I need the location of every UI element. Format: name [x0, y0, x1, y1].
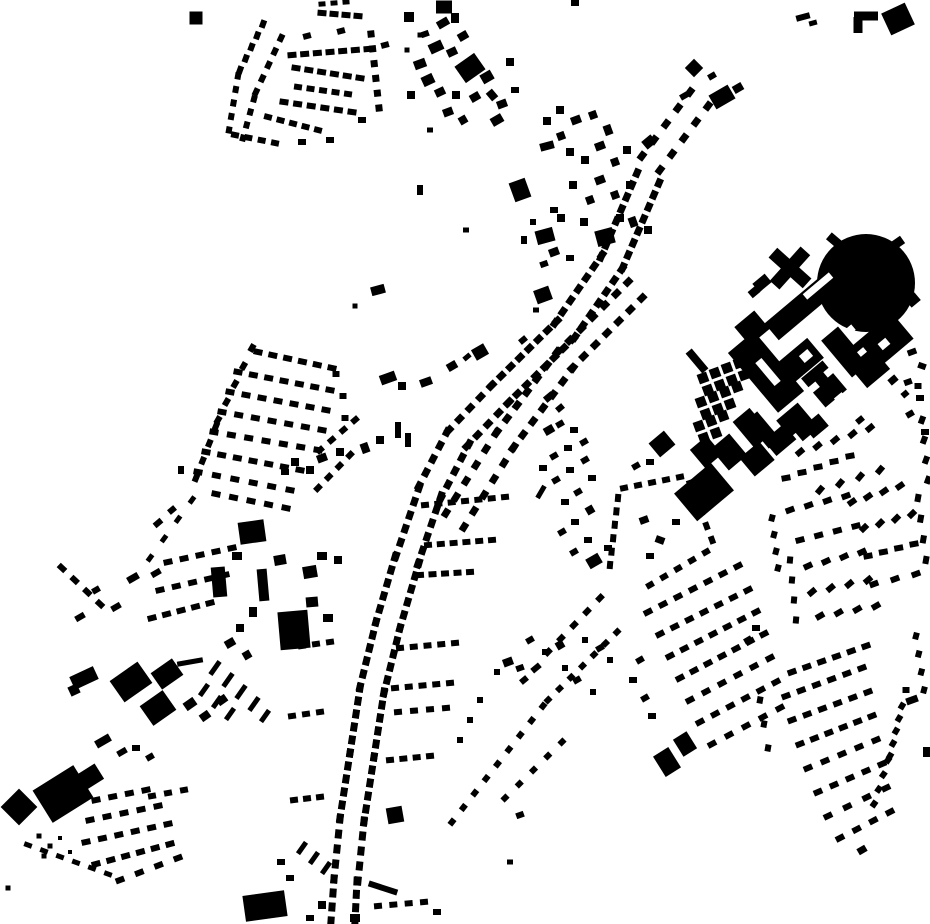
building	[813, 787, 824, 796]
building	[871, 601, 882, 611]
building	[823, 811, 834, 820]
building	[155, 586, 165, 594]
building	[459, 803, 468, 812]
building	[370, 752, 378, 762]
building	[499, 457, 510, 468]
building	[580, 218, 588, 226]
building	[334, 556, 342, 564]
building	[622, 276, 633, 287]
building	[380, 687, 388, 697]
building	[506, 58, 514, 66]
building	[558, 376, 569, 387]
building	[418, 682, 427, 689]
building	[639, 515, 650, 525]
building	[264, 60, 273, 70]
building	[914, 494, 921, 503]
building	[288, 712, 297, 719]
building	[228, 113, 235, 121]
figure-ground-map	[0, 0, 930, 924]
building	[356, 861, 364, 871]
building	[392, 636, 401, 646]
building	[578, 351, 589, 362]
building	[247, 108, 255, 116]
building	[454, 413, 465, 424]
building	[802, 710, 813, 719]
building	[613, 507, 620, 515]
building	[493, 759, 502, 768]
building	[471, 343, 489, 360]
building	[326, 137, 334, 143]
building	[855, 415, 865, 425]
building	[97, 835, 107, 843]
building	[108, 793, 118, 801]
building	[261, 437, 271, 444]
building	[325, 386, 335, 394]
building	[273, 554, 287, 566]
building	[341, 12, 350, 19]
building	[653, 747, 681, 777]
building	[752, 625, 760, 631]
building	[795, 12, 810, 21]
building	[368, 630, 377, 640]
building	[685, 695, 696, 704]
building	[756, 696, 763, 704]
building	[816, 657, 826, 666]
building	[874, 785, 883, 794]
building	[518, 429, 529, 440]
building	[603, 124, 614, 136]
building	[446, 360, 459, 372]
building	[820, 757, 831, 766]
building	[725, 701, 736, 711]
building	[246, 497, 256, 505]
building	[6, 886, 11, 891]
building	[442, 705, 450, 712]
building	[434, 500, 443, 507]
building	[187, 579, 197, 587]
building	[708, 535, 716, 545]
building	[287, 52, 296, 59]
building	[709, 367, 722, 380]
building	[126, 572, 140, 584]
building	[324, 472, 334, 482]
building	[153, 861, 164, 870]
building	[466, 569, 474, 575]
building	[368, 765, 376, 775]
building	[103, 870, 112, 877]
building	[284, 420, 294, 427]
building	[895, 481, 906, 491]
building	[551, 475, 561, 484]
building	[689, 666, 700, 675]
building	[308, 851, 320, 865]
building	[496, 99, 508, 110]
building	[365, 643, 374, 653]
building	[451, 13, 459, 23]
building	[338, 425, 348, 435]
building	[423, 642, 432, 649]
building	[771, 677, 782, 687]
building	[454, 53, 485, 83]
building	[242, 890, 287, 922]
building	[740, 693, 751, 703]
building	[631, 461, 641, 470]
building	[655, 535, 666, 545]
building	[313, 126, 322, 134]
building	[289, 400, 299, 408]
building	[917, 362, 927, 370]
building	[610, 534, 617, 542]
building	[452, 91, 460, 99]
building	[589, 261, 600, 272]
building	[329, 888, 337, 897]
building	[522, 386, 533, 397]
building	[673, 592, 684, 601]
building	[386, 757, 395, 764]
building	[228, 494, 238, 502]
building	[831, 652, 841, 661]
building	[768, 514, 776, 522]
building	[669, 622, 680, 631]
building	[360, 442, 371, 454]
building	[302, 32, 311, 40]
building	[469, 91, 482, 103]
building	[441, 507, 452, 518]
building	[395, 422, 401, 438]
building	[327, 435, 337, 445]
building	[515, 779, 524, 788]
building	[688, 584, 699, 593]
building	[529, 765, 538, 774]
building	[449, 540, 457, 547]
building	[347, 108, 357, 115]
building	[691, 116, 702, 127]
building	[557, 737, 566, 746]
building	[673, 102, 684, 113]
building	[673, 564, 683, 573]
building	[374, 89, 382, 97]
building	[647, 479, 656, 486]
building	[428, 571, 436, 577]
building	[403, 597, 412, 608]
building	[329, 11, 338, 18]
building	[774, 564, 782, 572]
building	[543, 424, 556, 436]
building	[475, 391, 486, 402]
building	[846, 647, 856, 656]
building	[482, 774, 491, 783]
building	[865, 423, 876, 433]
building	[291, 64, 301, 71]
building	[607, 657, 613, 663]
building	[399, 610, 408, 621]
building	[150, 568, 162, 578]
building	[920, 435, 928, 445]
building	[238, 519, 267, 544]
building	[294, 380, 304, 388]
building	[890, 575, 901, 584]
building	[404, 900, 412, 907]
building	[310, 383, 320, 391]
building	[257, 394, 267, 402]
building	[470, 788, 479, 797]
building	[623, 146, 631, 154]
building	[854, 743, 865, 752]
building	[879, 486, 890, 496]
building	[259, 19, 267, 29]
building	[396, 623, 405, 633]
building	[244, 434, 254, 441]
building	[298, 642, 307, 649]
building	[232, 552, 242, 560]
building	[353, 304, 358, 309]
building	[854, 17, 863, 33]
building	[870, 799, 879, 808]
building	[459, 521, 470, 532]
building	[376, 713, 384, 723]
building	[453, 570, 461, 576]
building	[295, 466, 305, 474]
building	[407, 91, 415, 99]
building	[915, 383, 922, 389]
building	[224, 637, 237, 649]
building	[394, 709, 402, 716]
building	[257, 569, 270, 602]
building	[148, 792, 157, 799]
building	[502, 413, 513, 424]
building	[258, 74, 267, 84]
building	[116, 747, 128, 757]
building	[613, 316, 624, 327]
building	[306, 915, 314, 921]
building	[534, 227, 555, 245]
building	[505, 361, 516, 372]
building	[316, 708, 325, 715]
building	[464, 402, 475, 413]
building	[868, 816, 879, 825]
building	[608, 547, 615, 555]
building	[145, 752, 155, 761]
building	[23, 841, 32, 848]
building	[383, 578, 392, 589]
building	[426, 706, 434, 713]
building	[533, 308, 539, 313]
building	[569, 181, 577, 189]
building	[825, 583, 836, 593]
building	[611, 288, 622, 299]
building	[352, 903, 359, 912]
building	[832, 527, 842, 535]
building	[353, 13, 362, 20]
building	[509, 178, 532, 203]
building	[436, 1, 452, 14]
building	[167, 505, 177, 515]
building	[319, 87, 328, 94]
building	[264, 374, 274, 382]
building	[190, 603, 200, 611]
building	[687, 556, 697, 565]
building	[622, 191, 632, 202]
building	[221, 672, 234, 688]
building	[851, 825, 862, 834]
building	[115, 876, 126, 885]
building	[566, 467, 574, 473]
building	[787, 556, 794, 563]
building	[566, 255, 574, 261]
building	[457, 737, 463, 743]
building	[722, 622, 733, 631]
building	[847, 497, 858, 507]
building	[518, 335, 528, 345]
building	[629, 677, 637, 683]
building	[386, 662, 395, 672]
building	[330, 874, 338, 883]
building	[808, 20, 817, 27]
building	[328, 902, 336, 911]
building	[427, 518, 437, 529]
building	[285, 486, 295, 494]
building	[372, 75, 380, 83]
building	[759, 629, 770, 638]
building	[178, 466, 184, 474]
building	[751, 607, 762, 616]
building	[612, 627, 621, 636]
building	[410, 707, 418, 714]
building	[435, 440, 445, 451]
building	[922, 556, 929, 565]
building	[481, 443, 492, 454]
building	[225, 388, 235, 396]
building	[253, 31, 261, 41]
building	[633, 225, 643, 236]
building	[845, 452, 855, 459]
building	[628, 237, 638, 248]
building	[183, 697, 198, 711]
building	[279, 98, 289, 105]
building	[863, 688, 874, 697]
building	[55, 853, 64, 860]
building	[217, 408, 227, 415]
building	[787, 716, 798, 725]
building	[264, 460, 274, 468]
building	[789, 576, 796, 583]
building	[815, 485, 825, 496]
building	[539, 260, 549, 268]
building	[446, 680, 455, 687]
building	[601, 286, 612, 297]
building	[334, 106, 344, 113]
building	[637, 150, 648, 161]
building	[861, 793, 872, 802]
building	[838, 723, 849, 732]
building	[571, 519, 579, 525]
building	[327, 916, 335, 924]
building	[898, 701, 907, 710]
building	[279, 377, 289, 385]
building	[724, 398, 737, 411]
building	[686, 348, 709, 373]
building	[892, 726, 901, 735]
building	[891, 513, 902, 524]
building	[242, 650, 253, 661]
building	[646, 553, 654, 559]
building	[785, 506, 796, 515]
building	[198, 456, 207, 466]
building	[793, 616, 800, 623]
building	[842, 669, 853, 678]
building	[424, 542, 432, 549]
building	[564, 445, 572, 451]
building	[407, 584, 416, 595]
building	[570, 115, 582, 126]
building	[153, 518, 164, 528]
building	[632, 167, 642, 178]
building	[611, 521, 618, 529]
building	[409, 643, 418, 650]
building	[447, 499, 456, 506]
page: { "map": { "width": 930, "height": 924, …	[0, 0, 930, 924]
building	[619, 484, 628, 491]
building	[250, 414, 260, 421]
courtyard	[789, 332, 801, 344]
building	[527, 716, 536, 725]
building	[420, 899, 428, 906]
building	[770, 531, 778, 539]
building	[316, 453, 328, 464]
building	[405, 48, 410, 53]
building	[585, 553, 603, 570]
building	[755, 685, 766, 695]
building	[176, 606, 186, 614]
building	[141, 786, 151, 794]
building	[378, 700, 386, 710]
building	[421, 502, 430, 509]
building	[211, 490, 221, 498]
building	[500, 793, 509, 802]
building	[313, 483, 323, 493]
building	[781, 692, 792, 701]
building	[436, 17, 450, 30]
building	[636, 292, 647, 303]
building	[797, 469, 807, 476]
building	[733, 670, 744, 679]
building	[515, 811, 525, 819]
building	[494, 669, 500, 675]
building	[895, 714, 904, 723]
building	[841, 492, 852, 501]
building	[340, 393, 347, 399]
building	[861, 642, 871, 651]
building	[306, 85, 315, 92]
building	[247, 696, 260, 712]
building	[615, 494, 622, 502]
building	[859, 523, 870, 534]
building	[290, 797, 299, 804]
building	[482, 418, 493, 429]
building	[848, 693, 859, 702]
building	[590, 339, 601, 350]
building	[81, 838, 91, 846]
building	[241, 391, 251, 399]
building	[434, 86, 446, 97]
building	[515, 664, 525, 672]
building	[134, 868, 145, 877]
building	[161, 610, 171, 618]
building	[165, 840, 175, 848]
building	[205, 439, 214, 449]
building	[732, 82, 745, 94]
building	[400, 523, 410, 534]
